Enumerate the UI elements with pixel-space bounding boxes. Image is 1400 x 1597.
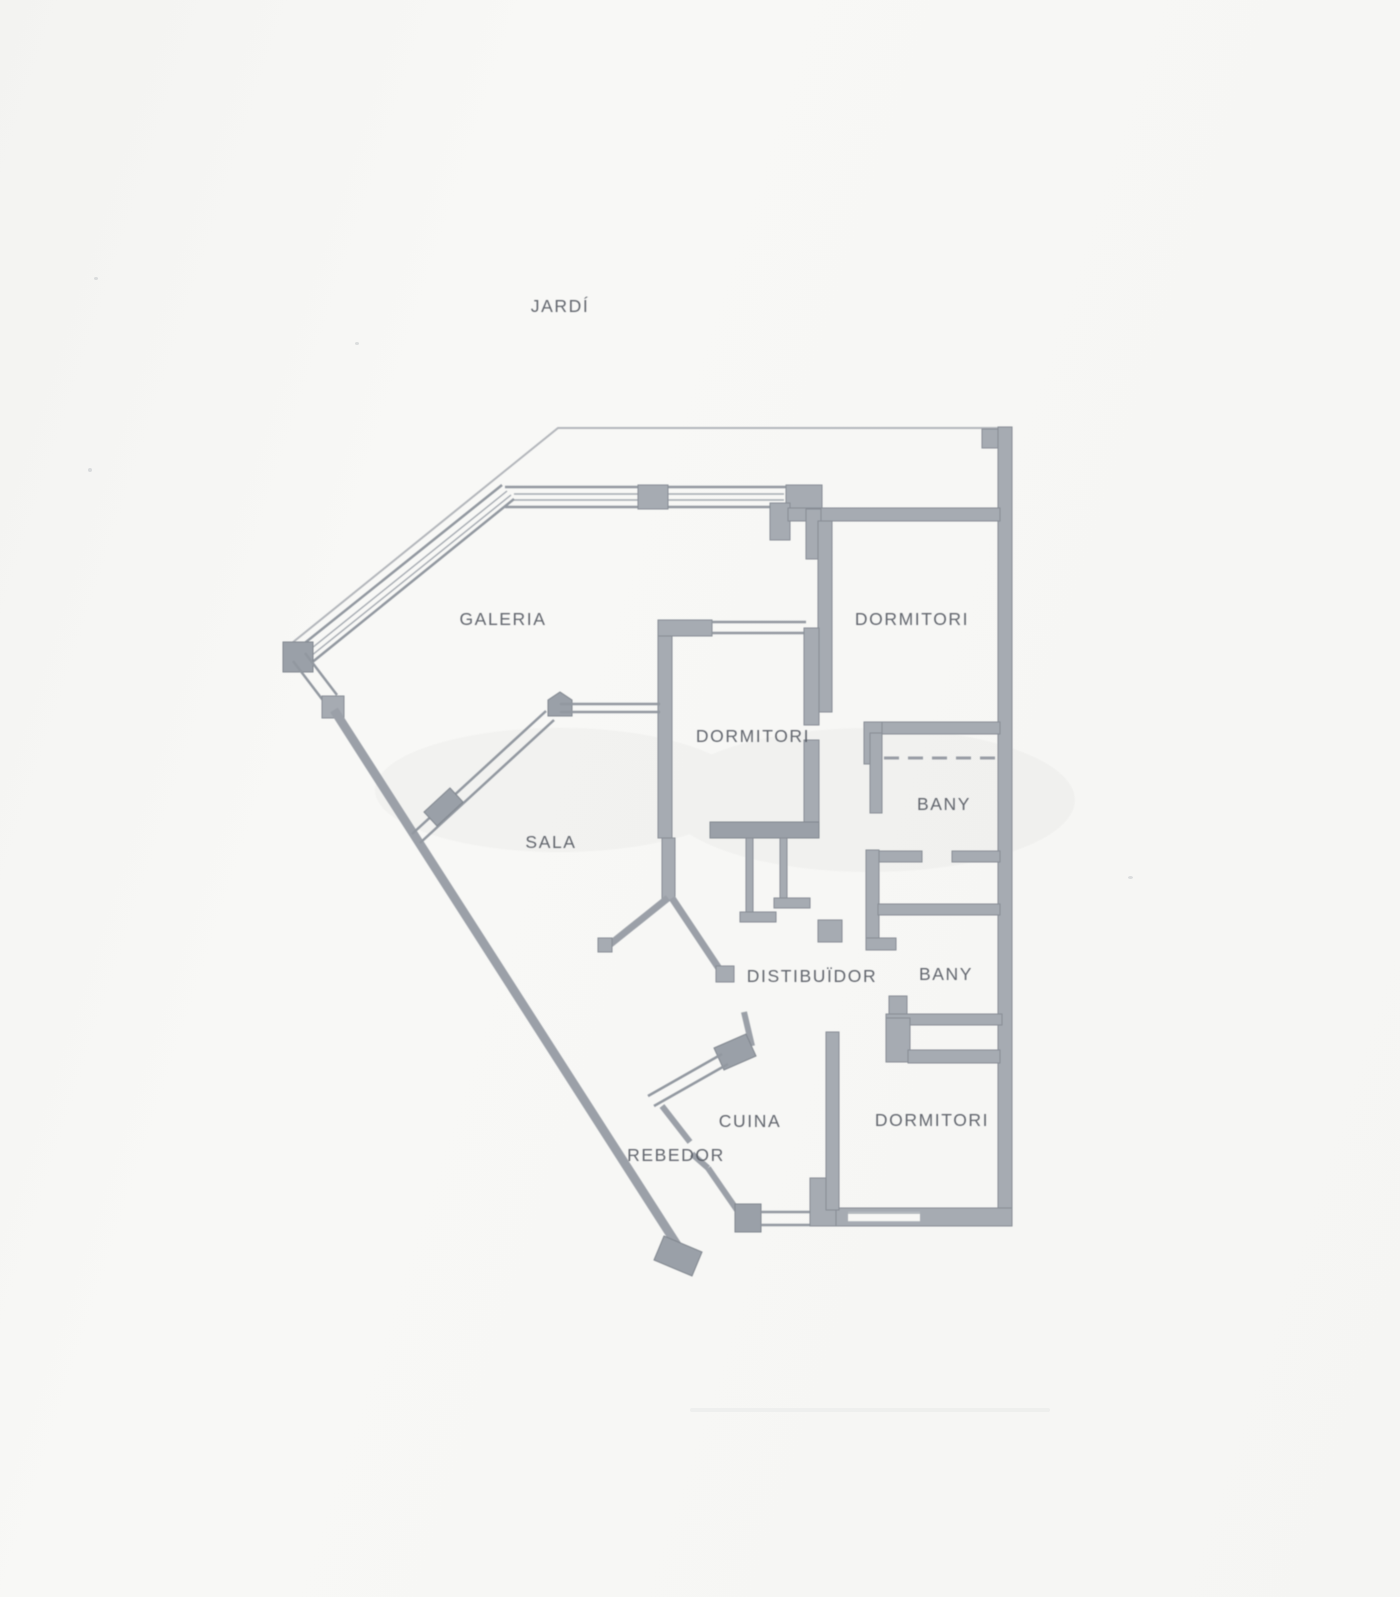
room-label-dormitori-nord: DORMITORI — [855, 609, 969, 629]
bottom-exterior-wall — [761, 1178, 1012, 1226]
floor-plan: JARDÍ GALERIA DORMITORI DORMITORI BANY S… — [0, 0, 1400, 1597]
room-label-rebedor: REBEDOR — [627, 1145, 725, 1165]
room-label-dormitori-sud: DORMITORI — [875, 1110, 989, 1130]
scan-speckle — [94, 277, 98, 280]
scanned-page: JARDÍ GALERIA DORMITORI DORMITORI BANY S… — [0, 0, 1400, 1597]
scan-smudge-line — [690, 1408, 1050, 1412]
room-label-sala: SALA — [525, 832, 576, 852]
galeria-diagonal-window — [283, 485, 514, 672]
room-label-distribuidor: DISTIBUÏDOR — [747, 966, 877, 986]
room-label-dormitori-centre: DORMITORI — [696, 726, 810, 746]
scan-speckle — [1128, 876, 1133, 879]
room-label-galeria: GALERIA — [459, 609, 546, 629]
room-label-jardi: JARDÍ — [531, 296, 590, 316]
room-label-bany-2: BANY — [919, 964, 973, 984]
scan-speckle — [355, 342, 359, 345]
sala-door-walls — [598, 898, 734, 982]
room-label-bany-1: BANY — [917, 794, 971, 814]
scan-speckle — [88, 468, 92, 472]
room-label-cuina: CUINA — [719, 1111, 781, 1131]
